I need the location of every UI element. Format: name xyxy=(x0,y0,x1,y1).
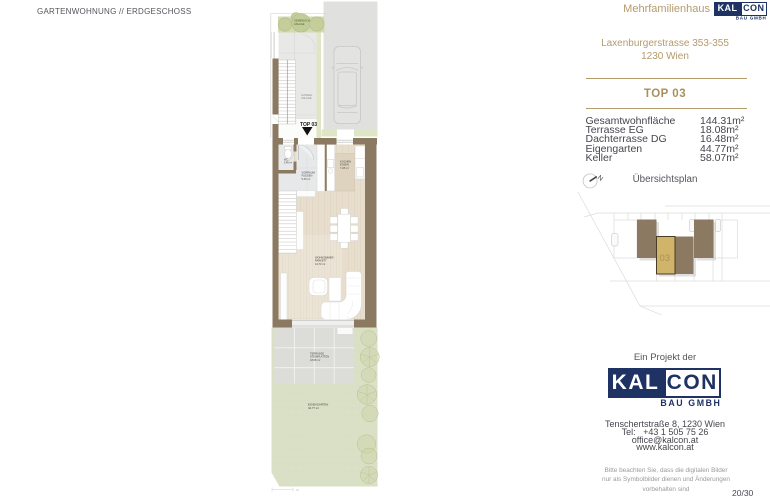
svg-text:7.28 m²: 7.28 m² xyxy=(340,166,349,170)
svg-text:44.77 m²: 44.77 m² xyxy=(308,406,319,410)
svg-text:03: 03 xyxy=(660,253,671,264)
svg-text:ANLAGE: ANLAGE xyxy=(294,22,305,26)
svg-text:TOP 03: TOP 03 xyxy=(300,122,317,128)
svg-text:41.73 m²: 41.73 m² xyxy=(315,262,325,266)
svg-text:5.45 m²: 5.45 m² xyxy=(302,177,311,181)
svg-text:ANLAGE: ANLAGE xyxy=(301,96,312,100)
svg-text:18.08 m²: 18.08 m² xyxy=(310,358,320,362)
svg-text:1.46 m²: 1.46 m² xyxy=(284,161,292,164)
